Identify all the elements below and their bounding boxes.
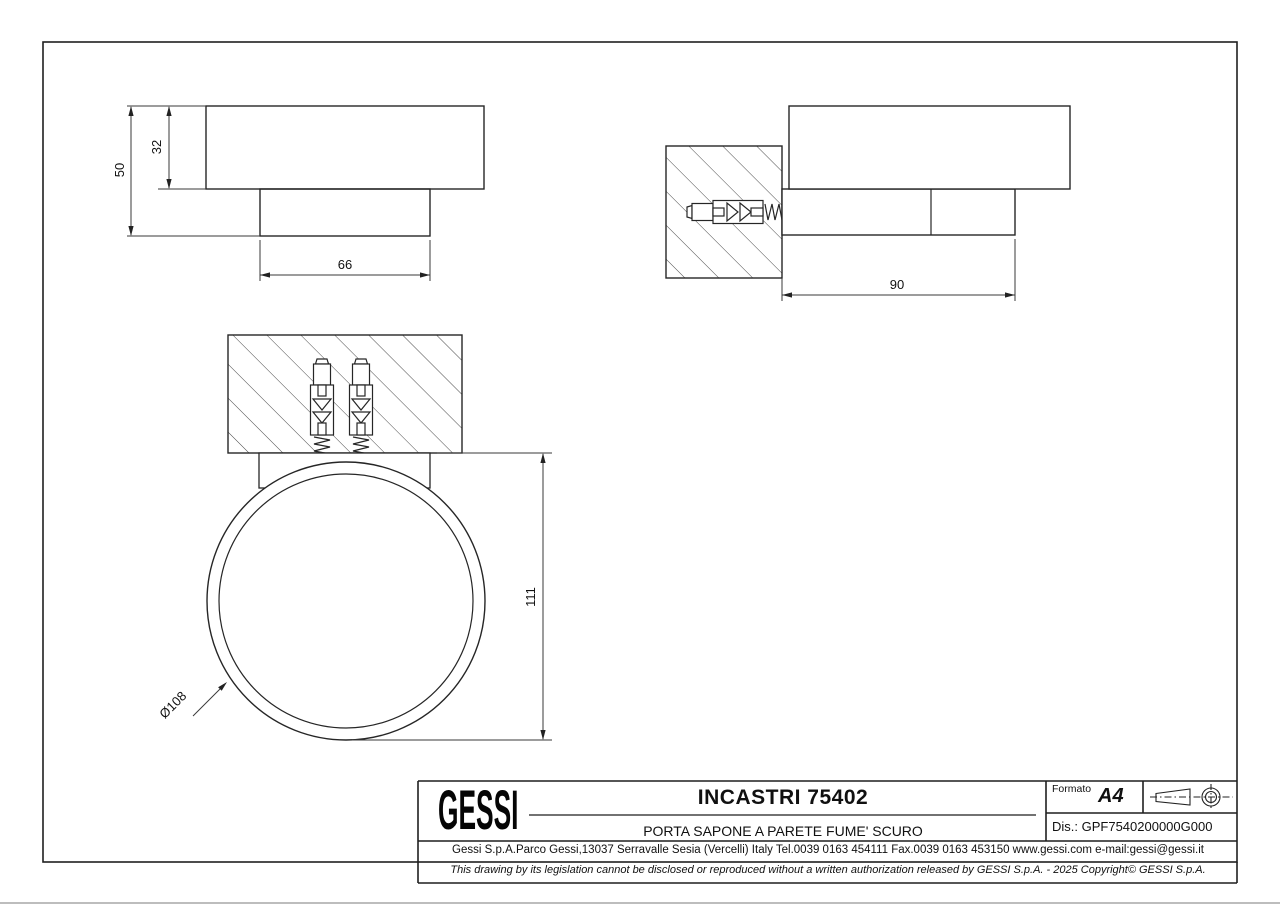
formato-value: A4: [1098, 785, 1124, 808]
dim-label-90: 90: [890, 277, 904, 292]
drawing-sheet: 50 32 66 90: [0, 0, 1280, 906]
formato-label: Formato: [1052, 783, 1091, 795]
drawing-subtitle: PORTA SAPONE A PARETE FUME' SCURO: [522, 823, 1044, 839]
side-view-arrows: [128, 106, 430, 278]
front-ring-outer: [207, 462, 485, 740]
dim-label-32: 32: [149, 140, 164, 154]
company-address: Gessi S.p.A.Parco Gessi,13037 Serravalle…: [419, 844, 1237, 856]
section-arm-outline: [782, 189, 1015, 235]
dim-label-66: 66: [338, 257, 352, 272]
projection-symbol-icon: [1150, 784, 1233, 810]
dim-label-diameter: Ø108: [156, 688, 189, 721]
front-view: 111 Ø108: [156, 335, 552, 740]
copyright-notice: This drawing by its legislation cannot b…: [419, 864, 1237, 876]
section-body-outline: [789, 106, 1070, 189]
side-view: 50 32 66: [112, 106, 484, 281]
dim-label-50: 50: [112, 163, 127, 177]
side-view-dimension-lines: [127, 106, 430, 281]
front-wall-hatch: [228, 335, 462, 453]
section-view: 90: [666, 106, 1070, 301]
drawing-canvas: 50 32 66 90: [0, 0, 1280, 906]
side-view-base-outline: [260, 189, 430, 236]
drawing-title: INCASTRI 75402: [522, 786, 1044, 810]
side-view-body-outline: [206, 106, 484, 189]
gessi-logo: GESSI: [438, 788, 518, 832]
drawing-number: Dis.: GPF7540200000G000: [1052, 819, 1212, 834]
dim-label-111: 111: [523, 587, 538, 607]
